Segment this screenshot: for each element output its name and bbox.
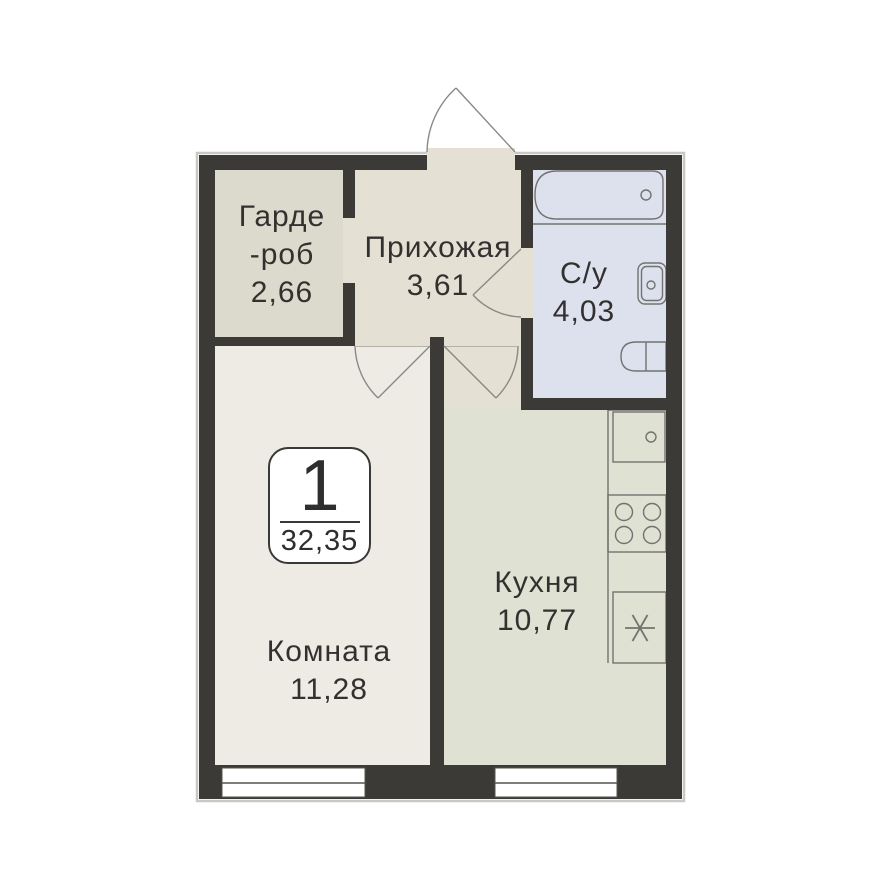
wall-wardrobe-divider-top bbox=[343, 170, 355, 218]
wall-room-kitchen-divider bbox=[430, 337, 444, 765]
wardrobe-name-line2: -роб bbox=[239, 236, 325, 274]
wall-top-left bbox=[199, 155, 427, 170]
wall-wardrobe-divider-bottom bbox=[343, 283, 355, 346]
wardrobe-label: Гарде -роб 2,66 bbox=[239, 198, 325, 312]
bathroom-name: С/у bbox=[553, 255, 615, 293]
rooms-count: 1 bbox=[299, 454, 339, 518]
wall-bathroom-left-top bbox=[521, 170, 533, 248]
entrance-door-opening bbox=[427, 148, 515, 170]
living-room-area: 11,28 bbox=[267, 671, 391, 709]
hallway-passage-floor bbox=[444, 337, 521, 408]
wall-left bbox=[199, 155, 215, 799]
wall-wardrobe-bottom bbox=[199, 337, 355, 346]
living-room-label: Комната 11,28 bbox=[267, 633, 391, 709]
kitchen-area: 10,77 bbox=[494, 602, 579, 640]
window-living-room bbox=[222, 768, 365, 797]
floor-plan-drawing bbox=[0, 0, 886, 886]
wardrobe-area: 2,66 bbox=[239, 274, 325, 312]
bathroom-area: 4,03 bbox=[553, 293, 615, 331]
bathroom-label: С/у 4,03 bbox=[553, 255, 615, 331]
bathroom-door-opening bbox=[521, 248, 533, 318]
room-door-opening bbox=[355, 337, 430, 346]
entrance-door-swing bbox=[427, 88, 515, 152]
wardrobe-name-line1: Гарде bbox=[239, 198, 325, 236]
hallway-name: Прихожая bbox=[364, 229, 511, 267]
kitchen-label: Кухня 10,77 bbox=[494, 564, 579, 640]
wall-top-right bbox=[515, 155, 682, 170]
badge-divider bbox=[280, 521, 360, 523]
window-kitchen bbox=[495, 768, 617, 797]
floor-plan: Гарде -роб 2,66 Прихожая 3,61 С/у 4,03 К… bbox=[0, 0, 886, 886]
wall-bathroom-bottom bbox=[521, 398, 682, 410]
wardrobe-door-opening bbox=[343, 218, 355, 283]
living-room-name: Комната bbox=[267, 633, 391, 671]
wall-bathroom-left-bottom bbox=[521, 318, 533, 410]
wall-right bbox=[666, 155, 682, 799]
total-area: 32,35 bbox=[281, 525, 359, 557]
kitchen-name: Кухня bbox=[494, 564, 579, 602]
hallway-label: Прихожая 3,61 bbox=[364, 229, 511, 305]
apartment-badge: 1 32,35 bbox=[268, 447, 371, 564]
hallway-area: 3,61 bbox=[364, 267, 511, 305]
